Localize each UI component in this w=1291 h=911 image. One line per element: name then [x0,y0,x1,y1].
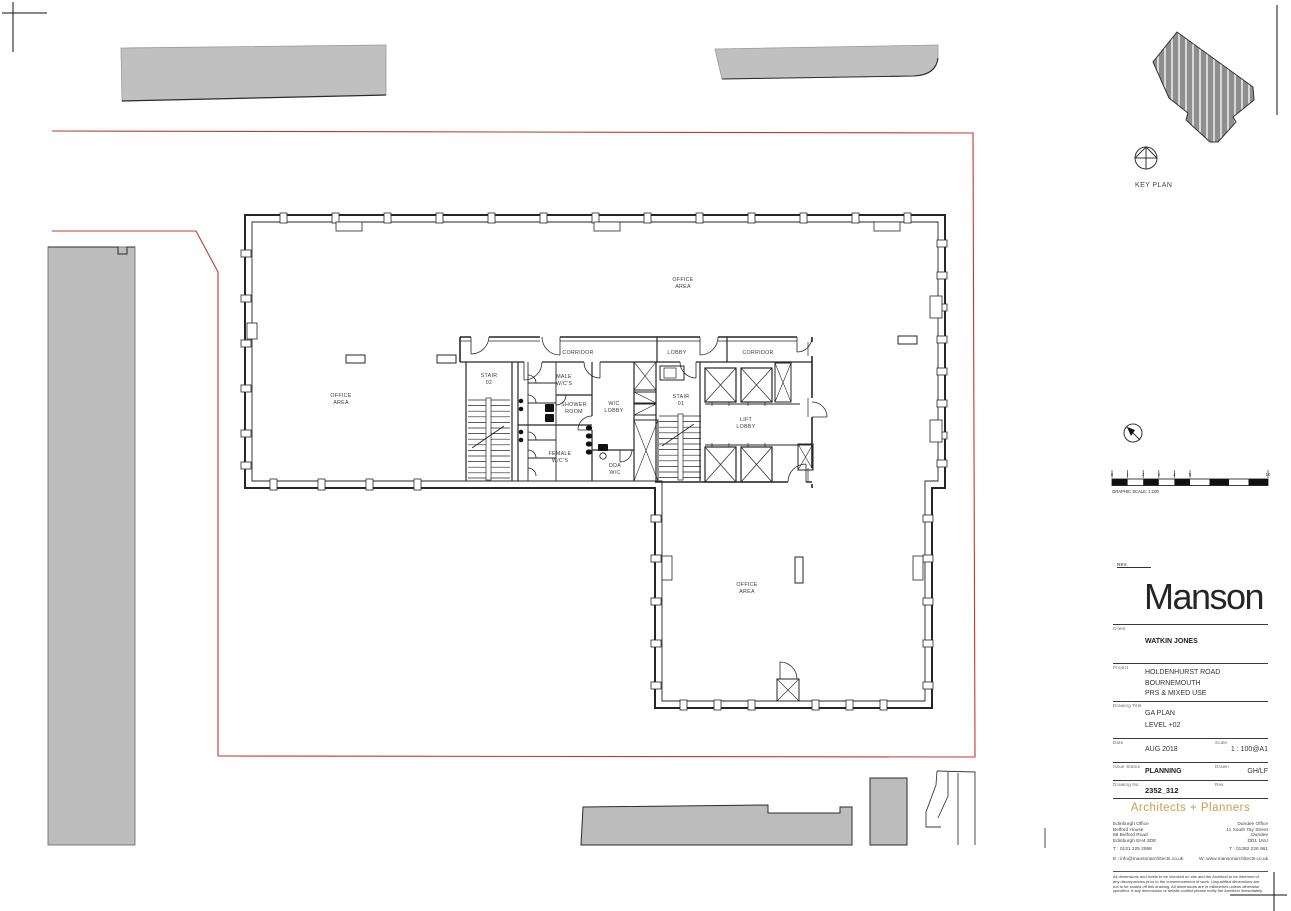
context-building-left [48,247,135,845]
drawn-value: GH/LF [1200,768,1268,775]
project-line: BOURNEMOUTH [1145,680,1201,687]
divider [1113,738,1268,739]
svg-text:AREA: AREA [333,400,349,406]
divider [1113,701,1268,702]
svg-text:3: 3 [1158,472,1161,477]
client-label: Client [1113,626,1126,631]
room-label-office-upper: OFFICE [672,277,693,283]
issue-status-value: PLANNING [1145,768,1182,775]
svg-text:ROOM: ROOM [565,409,583,415]
svg-text:W/C'S: W/C'S [552,458,569,464]
svg-text:01: 01 [678,401,685,407]
svg-text:W/C: W/C [609,470,620,476]
svg-text:AREA: AREA [675,284,691,290]
svg-text:5: 5 [1189,472,1192,477]
title-block: REV. Manson Client WATKIN JONES Project … [1100,556,1291,911]
room-label-stair02: STAIR [481,373,498,379]
svg-text:10: 10 [1266,472,1271,477]
room-label-corridor-right: CORRIDOR [742,350,773,356]
scale-label: Scale [1215,740,1227,745]
edinburgh-phone: T : 0131 225 2958 [1113,847,1152,853]
window-ticks [241,213,947,710]
rev-column-label: Rev. [1215,782,1225,787]
date-label: Date [1113,740,1123,745]
tagline: Architects + Planners [1113,802,1268,814]
stair-01 [659,366,701,480]
rev-table-label: REV. [1117,562,1151,568]
svg-text:2: 2 [1142,472,1145,477]
issue-status-label: Issue Status [1113,764,1140,769]
divider [1113,798,1268,799]
drawing-title-label: Drawing Title [1113,703,1142,708]
site-boundary [52,131,975,757]
project-line: HOLDENHURST ROAD [1145,669,1220,676]
key-plan: KEY PLAN [1135,32,1254,189]
riser-shafts [634,362,813,701]
context-buildings [48,45,1045,848]
website: W: www.mansonarchitects.co.uk [1160,857,1268,863]
context-building-outline [926,771,1045,848]
date-value: AUG 2018 [1145,746,1178,753]
drawing-title-line: LEVEL +02 [1145,722,1180,729]
room-label-stair01: STAIR [673,394,690,400]
room-label-wc-lobby: W/C [608,401,619,407]
divider [1113,871,1268,872]
drawing-title-line: GA PLAN [1145,710,1175,717]
svg-text:W/C'S: W/C'S [556,381,573,387]
room-labels: OFFICE AREA OFFICE AREA OFFICE AREA CORR… [330,277,773,595]
divider [1113,780,1268,781]
scale-value: 1 : 100@A1 [1200,746,1268,753]
divider [1113,624,1268,625]
compass-marker-icon [1124,424,1142,442]
disclaimer: All dimensions and levels to be checked … [1113,875,1265,894]
room-label-office-left: OFFICE [330,393,351,399]
trim-marks [2,2,1287,911]
svg-text:02: 02 [486,380,493,386]
drawing-sheet: OFFICE AREA OFFICE AREA OFFICE AREA CORR… [0,0,1291,911]
north-arrow-icon [1135,147,1157,169]
scale-bar-caption: GRAPHIC SCALE: 1:100 [1112,489,1159,494]
room-label-corridor-left: CORRIDOR [562,350,593,356]
room-label-lift-lobby: LIFT [740,417,753,423]
project-line: PRS & MIXED USE [1145,690,1206,697]
divider [1113,663,1268,664]
lift-shafts [705,368,813,482]
drawing-no-value: 2352_312 [1145,786,1178,795]
edinburgh-office-address: Edinburgh Office Belford House 58 Belfor… [1113,822,1156,844]
client-value: WATKIN JONES [1145,638,1198,645]
project-label: Project [1113,665,1128,670]
context-building-top-right [715,45,938,79]
dundee-phone: T : 01382 226 961 [1160,847,1268,853]
drawing-no-label: Drawing No. [1113,782,1140,787]
building-outline [245,215,945,708]
scale-bar: 0 1 2 3 4 5 10 GRAPHIC SCALE: 1:100 [1111,470,1271,494]
dundee-office-address: Dundee Office 11 South Tay Street Dundee… [1160,822,1268,844]
svg-text:0: 0 [1111,472,1114,477]
svg-text:LOBBY: LOBBY [604,408,623,414]
room-label-lobby: LOBBY [667,350,686,356]
svg-text:1: 1 [1126,472,1129,477]
svg-text:LOBBY: LOBBY [736,424,755,430]
context-building-bottom [581,805,852,845]
key-plan-label: KEY PLAN [1135,182,1172,189]
context-building-top-left [121,45,386,101]
room-label-female-wc: FEMALE [549,451,572,457]
svg-text:4: 4 [1173,472,1176,477]
svg-text:AREA: AREA [739,589,755,595]
context-building-bottom-small [870,778,907,845]
floor-plan-drawing: OFFICE AREA OFFICE AREA OFFICE AREA CORR… [0,0,1291,911]
manson-logo: Manson [1144,576,1263,618]
divider [1113,762,1268,763]
stair-02 [468,398,510,480]
room-label-dda-wc: DDA [609,463,621,469]
room-label-male-wc: MALE [556,374,572,380]
room-label-shower: SHOWER [561,402,587,408]
door-swings [471,337,827,679]
room-label-office-lower: OFFICE [736,582,757,588]
columns [346,336,917,583]
core-walls [460,337,812,488]
